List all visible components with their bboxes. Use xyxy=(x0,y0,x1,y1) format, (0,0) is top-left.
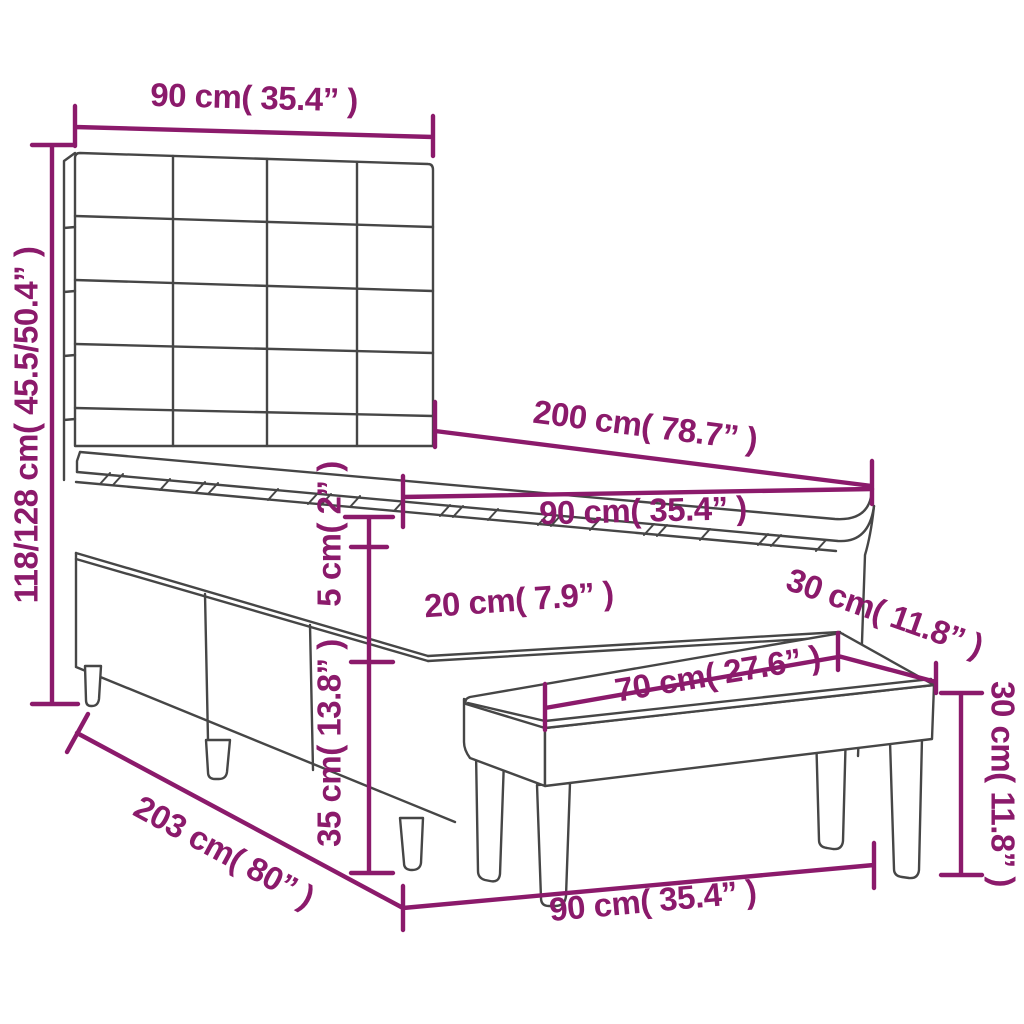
mattress-width-label: 90 cm( 35.4” ) xyxy=(539,489,748,531)
dim-bench-height: 30 cm( 11.8” ) xyxy=(941,681,1021,887)
base-height-label: 35 cm( 13.8” ) xyxy=(311,639,348,847)
dim-mattress-width: 90 cm( 35.4” ) xyxy=(403,476,872,531)
dim-bench-length: 90 cm( 35.4” ) xyxy=(403,843,874,930)
headboard-width-label: 90 cm( 35.4” ) xyxy=(150,76,359,119)
diagram-canvas: 90 cm( 35.4” ) 118/128 cm( 45.5/50.4” ) … xyxy=(0,0,1024,1024)
mattress-thickness-label: 20 cm( 7.9” ) xyxy=(423,574,615,624)
dim-headboard-width: 90 cm( 35.4” ) xyxy=(75,76,433,156)
dim-bed-length: 200 cm( 78.7” ) xyxy=(435,393,872,504)
headboard-side-edge xyxy=(64,153,75,480)
bench-leg-front-right xyxy=(890,738,922,878)
bench-height-label: 30 cm( 11.8” ) xyxy=(984,681,1021,887)
headboard-outline xyxy=(75,153,433,446)
box-spring-front xyxy=(76,553,455,822)
bed-leg-3 xyxy=(400,818,423,870)
bed-leg-2 xyxy=(206,740,230,779)
bed-dimension-diagram: 90 cm( 35.4” ) 118/128 cm( 45.5/50.4” ) … xyxy=(0,0,1024,1024)
dim-total-length: 203 cm( 80” ) xyxy=(67,714,403,915)
dim-line xyxy=(941,693,982,875)
total-length-label: 203 cm( 80” ) xyxy=(128,788,320,915)
bench-leg-front-left xyxy=(537,783,570,906)
headboard-height-label: 118/128 cm( 45.5/50.4” ) xyxy=(8,247,45,604)
dim-line xyxy=(345,517,393,873)
dim-line xyxy=(67,714,403,908)
bed-leg-1 xyxy=(85,666,101,706)
bed-line-art xyxy=(64,153,874,870)
box-spring-top-edge xyxy=(76,553,428,661)
topper-thickness-label: 5 cm( 2” ) xyxy=(311,461,348,606)
bench-leg-rear-left xyxy=(476,752,504,881)
bench-length-label: 90 cm( 35.4” ) xyxy=(548,872,758,928)
